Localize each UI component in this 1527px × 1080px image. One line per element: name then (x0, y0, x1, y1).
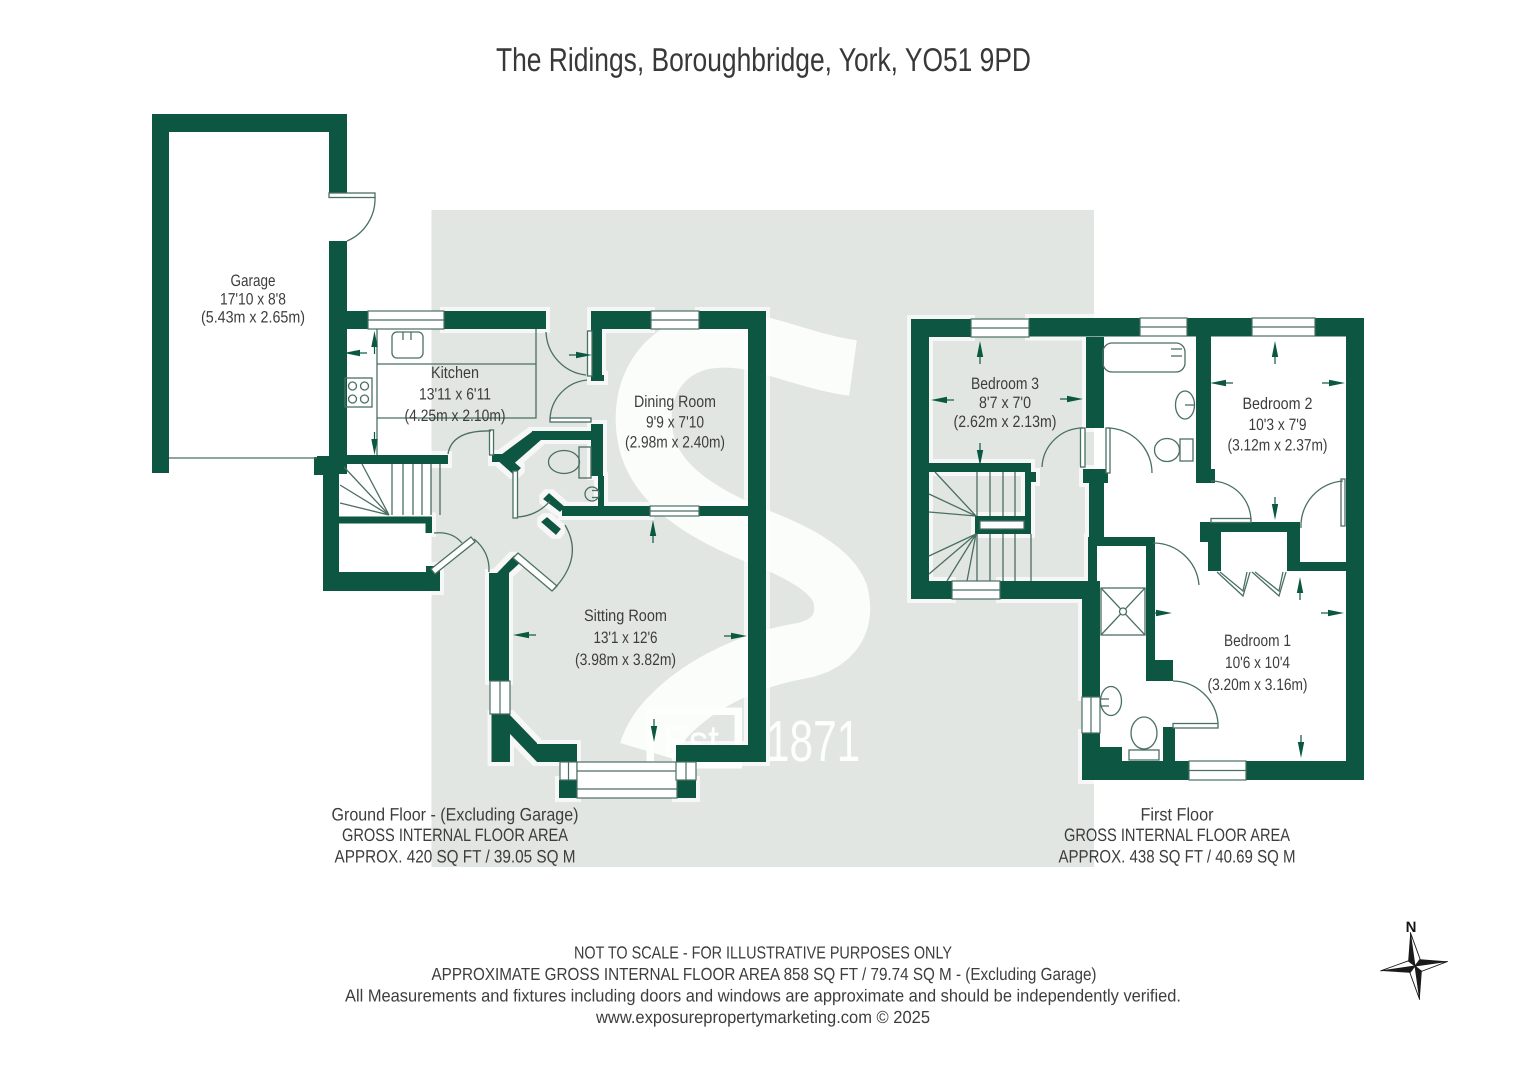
svg-text:(2.62m x 2.13m): (2.62m x 2.13m) (954, 413, 1057, 431)
svg-text:APPROXIMATE GROSS INTERNAL FLO: APPROXIMATE GROSS INTERNAL FLOOR AREA 85… (432, 964, 1097, 984)
svg-text:Ground Floor - (Excluding Gara: Ground Floor - (Excluding Garage) (332, 805, 579, 825)
svg-text:(2.98m x 2.40m): (2.98m x 2.40m) (625, 434, 725, 452)
svg-text:(3.20m x 3.16m): (3.20m x 3.16m) (1208, 676, 1308, 694)
svg-text:(3.12m x 2.37m): (3.12m x 2.37m) (1228, 437, 1328, 455)
svg-text:1871: 1871 (766, 709, 860, 774)
svg-text:GROSS INTERNAL FLOOR AREA: GROSS INTERNAL FLOOR AREA (342, 825, 568, 845)
svg-text:(4.25m x 2.10m): (4.25m x 2.10m) (405, 407, 506, 425)
svg-text:N: N (1406, 919, 1417, 936)
svg-text:First Floor: First Floor (1141, 805, 1214, 825)
svg-text:10'3 x 7'9: 10'3 x 7'9 (1249, 416, 1307, 434)
svg-text:APPROX. 438 SQ FT / 40.69 SQ M: APPROX. 438 SQ FT / 40.69 SQ M (1059, 847, 1296, 867)
svg-text:Bedroom 2: Bedroom 2 (1243, 395, 1313, 413)
svg-text:(5.43m x 2.65m): (5.43m x 2.65m) (201, 309, 305, 327)
svg-text:9'9 x 7'10: 9'9 x 7'10 (646, 414, 704, 432)
svg-text:Garage: Garage (231, 272, 276, 290)
svg-text:Bedroom 1: Bedroom 1 (1224, 632, 1291, 650)
svg-text:13'1 x 12'6: 13'1 x 12'6 (594, 629, 658, 647)
svg-text:Bedroom 3: Bedroom 3 (971, 375, 1039, 393)
svg-text:Dining Room: Dining Room (634, 393, 716, 411)
svg-text:APPROX. 420 SQ FT / 39.05 SQ M: APPROX. 420 SQ FT / 39.05 SQ M (335, 847, 576, 867)
svg-text:Kitchen: Kitchen (431, 364, 479, 382)
svg-text:www.exposurepropertymarketing.: www.exposurepropertymarketing.com © 2025 (595, 1007, 930, 1027)
svg-text:All Measurements and fixtures: All Measurements and fixtures including … (345, 986, 1181, 1006)
svg-text:13'11 x 6'11: 13'11 x 6'11 (419, 386, 491, 404)
svg-text:10'6 x 10'4: 10'6 x 10'4 (1225, 654, 1290, 672)
svg-text:Sitting Room: Sitting Room (584, 607, 667, 625)
svg-text:NOT TO SCALE - FOR ILLUSTRATIV: NOT TO SCALE - FOR ILLUSTRATIVE PURPOSES… (574, 943, 952, 963)
svg-text:The Ridings, Boroughbridge, Yo: The Ridings, Boroughbridge, York, YO51 9… (496, 41, 1031, 78)
svg-text:GROSS INTERNAL FLOOR AREA: GROSS INTERNAL FLOOR AREA (1064, 825, 1290, 845)
svg-text:8'7 x 7'0: 8'7 x 7'0 (979, 394, 1031, 412)
svg-text:17'10 x 8'8: 17'10 x 8'8 (220, 291, 286, 309)
svg-text:(3.98m x 3.82m): (3.98m x 3.82m) (575, 651, 676, 669)
